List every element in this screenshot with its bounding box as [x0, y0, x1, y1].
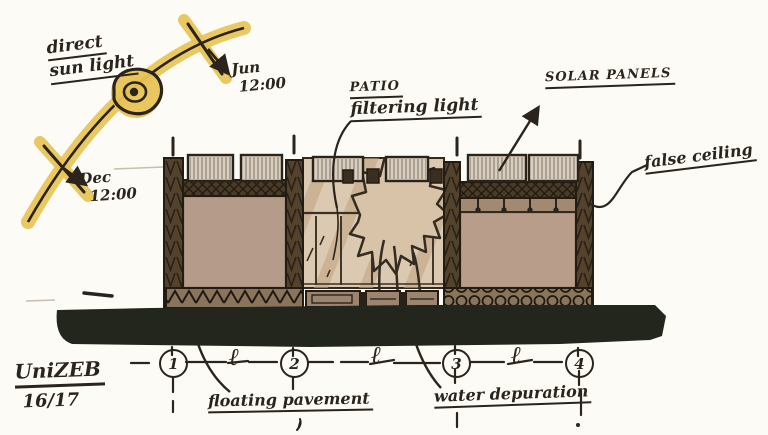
- span-symbol-1: ℓ: [229, 342, 239, 372]
- floating-pavement-label: floating pavement: [208, 389, 373, 414]
- summer-sun-label: Jun 12:00: [231, 56, 287, 97]
- solar-panel: [529, 155, 578, 181]
- grid-axis-number: 3: [451, 355, 461, 373]
- patio-title: PATIO: [349, 78, 403, 98]
- project-year: 16/17: [22, 389, 79, 412]
- left-room: [183, 196, 286, 288]
- patio-label: PATIO filtering light: [349, 72, 482, 123]
- grid-axis-number: 4: [574, 355, 584, 373]
- floating-pavement-leader: [197, 341, 230, 392]
- grid-bubble-3: 3: [442, 349, 471, 378]
- patio-subtitle: filtering light: [350, 94, 482, 122]
- sketch-canvas: direct sun light Jun 12:00 Dec 12:00 PAT…: [0, 0, 768, 435]
- project-name: UniZEB: [14, 356, 105, 388]
- grid-axis-number: 1: [168, 355, 178, 373]
- solar-panel: [468, 155, 526, 181]
- solar-panel: [241, 155, 282, 181]
- winter-month: Dec: [79, 168, 112, 188]
- grid-axis-number: 2: [289, 355, 299, 373]
- winter-sun-label: Dec 12:00: [79, 166, 138, 206]
- title-block: UniZEB 16/17: [14, 356, 106, 413]
- solar-panel: [313, 157, 363, 181]
- grid-bubble-2: 2: [280, 349, 309, 378]
- grid-bubble-1: 1: [159, 349, 188, 378]
- span-symbol-3: ℓ: [511, 340, 521, 370]
- grid-bubble-4: 4: [565, 349, 594, 378]
- pavement-boxes: [306, 291, 438, 307]
- span-symbol-2: ℓ: [371, 340, 381, 370]
- dimension-line: [131, 360, 562, 364]
- solar-panel: [188, 155, 233, 181]
- false-ceiling-leader: [589, 165, 647, 207]
- solar-panel: [386, 157, 428, 181]
- right-room: [460, 198, 576, 288]
- winter-time: 12:00: [89, 184, 137, 205]
